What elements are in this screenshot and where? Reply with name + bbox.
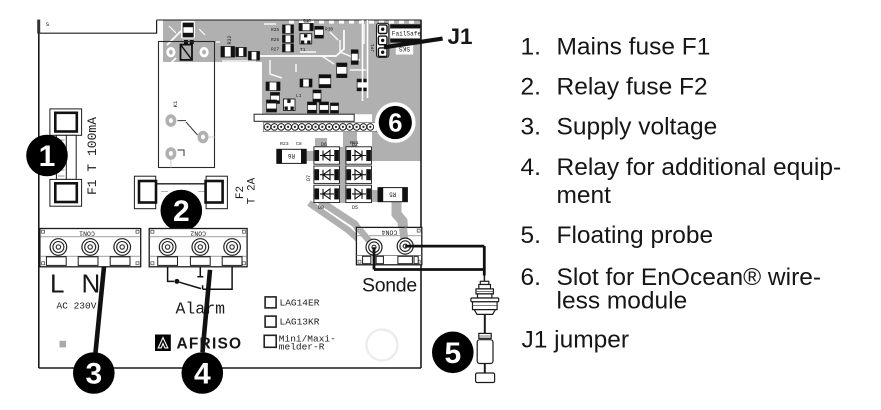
svg-text:AFRISO: AFRISO <box>177 335 243 352</box>
svg-text:Relay for additional equip-: Relay for additional equip- <box>557 154 842 181</box>
svg-text:R25: R25 <box>271 27 279 33</box>
svg-text:C10: C10 <box>303 18 311 24</box>
svg-text:N: N <box>82 268 101 298</box>
svg-text:6.: 6. <box>521 264 541 291</box>
svg-text:C8: C8 <box>296 141 302 147</box>
svg-text:4: 4 <box>194 358 211 391</box>
svg-text:Supply voltage: Supply voltage <box>557 114 718 141</box>
svg-text:1.: 1. <box>521 34 541 61</box>
svg-text:J1: J1 <box>448 24 473 49</box>
svg-text:Alarm: Alarm <box>176 300 226 319</box>
svg-text:AC 230V: AC 230V <box>57 300 97 311</box>
svg-text:Sonde: Sonde <box>362 275 417 297</box>
svg-text:T 2A: T 2A <box>247 177 259 204</box>
svg-text:L: L <box>50 268 64 298</box>
svg-text:FailSafe: FailSafe <box>392 31 422 38</box>
svg-text:D5: D5 <box>352 205 358 211</box>
svg-text:F2: F2 <box>235 186 247 199</box>
svg-text:Relay fuse F2: Relay fuse F2 <box>557 74 708 101</box>
svg-text:K1: K1 <box>172 100 179 107</box>
svg-text:CON2: CON2 <box>190 229 206 236</box>
svg-text:JP1: JP1 <box>370 44 376 52</box>
svg-text:s: s <box>46 21 50 28</box>
svg-text:2.: 2. <box>521 74 541 101</box>
svg-text:5: 5 <box>444 337 461 370</box>
svg-text:J1 jumper: J1 jumper <box>522 327 630 354</box>
svg-text:R32: R32 <box>227 35 233 44</box>
svg-text:F1 T 100mA: F1 T 100mA <box>85 117 100 195</box>
svg-text:1: 1 <box>39 140 56 173</box>
svg-text:less module: less module <box>557 287 688 314</box>
svg-text:R27: R27 <box>271 47 279 53</box>
svg-text:Mains fuse F1: Mains fuse F1 <box>557 34 711 61</box>
svg-text:melder-R: melder-R <box>279 341 325 352</box>
svg-text:R6: R6 <box>288 152 296 159</box>
svg-text:R30: R30 <box>325 27 333 33</box>
svg-text:LAG14ER: LAG14ER <box>280 297 320 308</box>
svg-text:T1: T1 <box>300 47 306 53</box>
svg-text:CON1: CON1 <box>79 229 95 236</box>
svg-text:R26: R26 <box>271 37 279 43</box>
svg-text:LAG13KR: LAG13KR <box>280 317 320 328</box>
svg-text:L1: L1 <box>296 93 302 99</box>
svg-text:6: 6 <box>388 110 402 138</box>
svg-text:3.: 3. <box>521 114 541 141</box>
svg-text:R5: R5 <box>389 190 397 197</box>
svg-text:5.: 5. <box>521 222 541 249</box>
svg-text:D2: D2 <box>352 142 358 148</box>
svg-text:CON4: CON4 <box>382 228 398 235</box>
svg-text:2: 2 <box>173 195 190 228</box>
svg-text:Floating probe: Floating probe <box>557 222 714 249</box>
svg-text:4.: 4. <box>521 154 541 181</box>
svg-text:D6: D6 <box>321 142 327 148</box>
svg-text:D7: D7 <box>306 175 312 181</box>
svg-text:D8: D8 <box>318 205 324 211</box>
svg-text:3: 3 <box>85 358 102 391</box>
svg-text:ment: ment <box>557 182 612 209</box>
svg-text:R23: R23 <box>280 141 289 147</box>
